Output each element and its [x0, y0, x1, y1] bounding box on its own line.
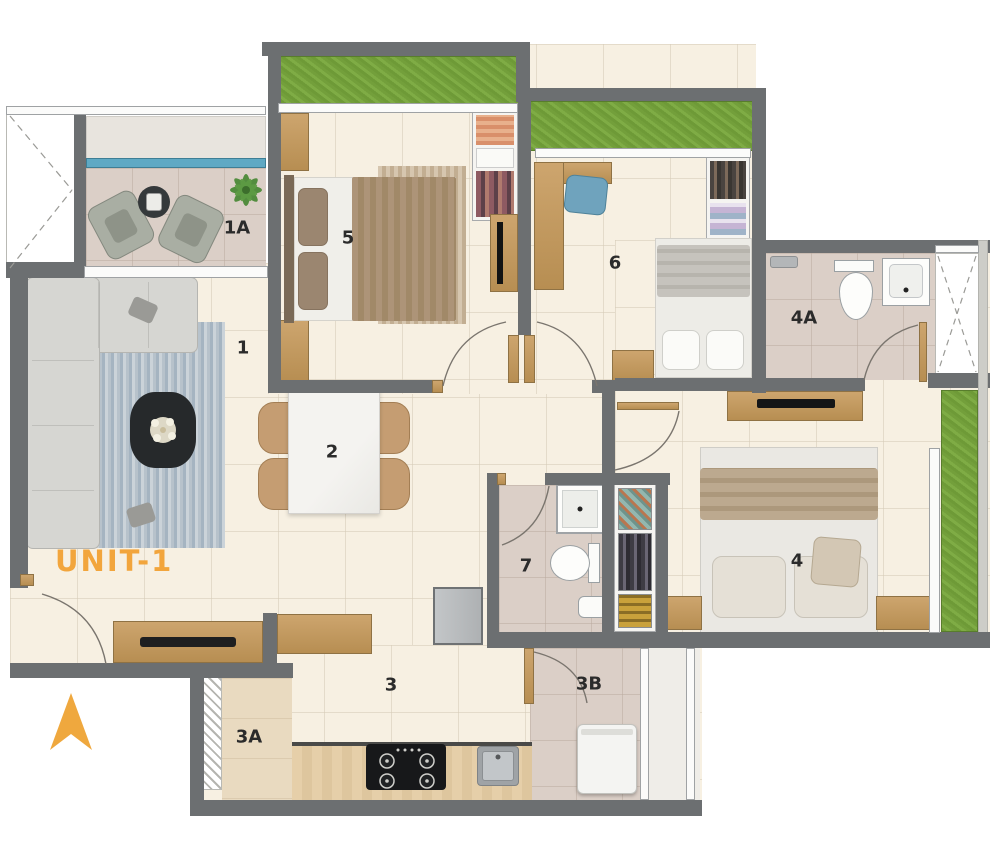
coffee-table — [130, 392, 196, 468]
room-label-dining: 2 — [326, 442, 339, 463]
bathroom7-toilet-bowl — [550, 545, 590, 581]
floor-plan-canvas: 1 1A 2 3 3A 3B 4 4A 5 6 7 UNIT-1 — [0, 0, 1000, 867]
wall — [545, 473, 670, 485]
wall — [190, 678, 204, 816]
bedroom4-bed-blanket — [700, 468, 878, 520]
door-jamb-entry — [20, 574, 34, 586]
balcony-table-tray — [146, 193, 162, 211]
window-living-balcony — [84, 266, 268, 278]
washing-machine-panel — [581, 729, 633, 735]
wall — [263, 613, 277, 665]
bedroom4-bench-right — [876, 596, 932, 630]
wall — [74, 112, 86, 272]
bedroom5-bed-blanket — [352, 177, 456, 321]
wall — [10, 663, 293, 678]
sofa-cushion-line — [98, 282, 99, 348]
bathroom7-shower-tray — [562, 490, 598, 528]
bedroom5-nightstand-top — [277, 113, 309, 171]
bedroom5-wardrobe-clothes-top — [476, 115, 514, 145]
bedroom6-desk-side — [534, 162, 564, 290]
planter-above-bedroom-5 — [268, 56, 524, 106]
fridge — [433, 587, 483, 645]
bedroom5-tv-unit — [490, 214, 518, 292]
wall — [615, 378, 865, 391]
sofa-left-section — [26, 277, 100, 549]
door-leaf-bathroom4a — [919, 322, 927, 382]
bedroom5-pillow — [298, 252, 328, 310]
room-label-bedroom6: 6 — [609, 253, 622, 274]
bedroom5-tv — [497, 222, 503, 284]
wall — [487, 632, 990, 648]
sideboard-dining — [277, 614, 372, 654]
bedroom6-wardrobe-towels — [710, 203, 746, 235]
planter-above-bedroom-6 — [530, 101, 755, 151]
service-shaft-right — [935, 253, 979, 375]
door-jamb — [497, 473, 506, 485]
bedroom6-desk-chair — [563, 174, 609, 216]
wall — [524, 88, 766, 101]
hall-wardrobe-box — [618, 594, 652, 628]
window-kitchen-2 — [686, 648, 695, 800]
wall — [268, 42, 281, 393]
wall — [268, 380, 443, 393]
glass-railing — [86, 158, 266, 168]
room-label-bath4a: 4A — [791, 308, 817, 329]
bedroom6-wardrobe-clothes — [710, 161, 746, 199]
room-label-utility: 3B — [576, 674, 602, 695]
bedroom6-pillow — [662, 330, 700, 370]
wall — [190, 800, 702, 816]
door-jamb-3b — [524, 648, 534, 704]
door-jamb — [508, 335, 519, 383]
balcony-ac-ledge — [86, 116, 266, 160]
bedroom5-wardrobe-shelf — [476, 148, 514, 168]
wall — [602, 485, 614, 632]
hall-wardrobe-clothes — [618, 533, 652, 591]
room-label-bedroom4: 4 — [791, 551, 804, 572]
bedroom4-pillow — [712, 556, 786, 618]
hall-wardrobe-shelf-top — [618, 488, 652, 530]
window-shaft-top — [935, 245, 979, 253]
room-label-kitchen: 3 — [385, 675, 398, 696]
sofa-cushion-line — [32, 490, 94, 491]
outer-wall-right — [978, 240, 988, 638]
wall — [602, 380, 615, 485]
door-leaf-bedroom4 — [617, 402, 679, 410]
bedroom4-tv — [757, 399, 835, 408]
window-bedroom5 — [278, 103, 518, 113]
room-label-balcony: 1A — [224, 218, 250, 239]
bathroom4a-sink-bowl — [889, 264, 923, 298]
north-arrow-icon — [50, 693, 92, 750]
window-balcony-top — [6, 106, 266, 115]
room-label-bedroom5: 5 — [342, 228, 355, 249]
stove — [366, 744, 446, 790]
service-shaft-kitchen — [202, 676, 222, 790]
bedroom6-pillow — [706, 330, 744, 370]
wall — [656, 485, 668, 632]
open-ledge-left — [6, 112, 76, 272]
wall — [518, 99, 531, 335]
wall — [10, 263, 28, 588]
bedroom5-wardrobe-clothes-bottom — [476, 171, 514, 217]
sofa-cushion-line — [32, 360, 94, 361]
bedroom4-accent-pillow — [810, 536, 862, 588]
tv-living — [140, 637, 236, 647]
window-kitchen-1 — [640, 648, 649, 800]
bathroom4a-basin — [770, 256, 798, 268]
bedroom5-bed-headboard — [284, 175, 294, 323]
planter-right-of-bedroom-4 — [941, 390, 978, 632]
door-jamb — [432, 380, 443, 393]
room-label-ledge-3a: 3A — [236, 727, 262, 748]
bathroom4a-toilet-tank — [834, 260, 874, 272]
kitchen-sink-basin — [482, 751, 514, 781]
door-jamb — [524, 335, 535, 383]
window-bedroom6 — [535, 148, 751, 158]
bedroom5-nightstand-bottom — [277, 320, 309, 382]
unit-title: UNIT-1 — [55, 544, 173, 578]
bedroom5-pillow — [298, 188, 328, 246]
room-label-bath7: 7 — [520, 556, 533, 577]
bedroom6-bed-blanket — [657, 245, 750, 297]
window-bedroom4 — [929, 448, 940, 633]
room-label-living: 1 — [237, 338, 250, 359]
sofa-cushion-line — [32, 425, 94, 426]
wall — [487, 473, 499, 648]
wall — [262, 42, 530, 56]
